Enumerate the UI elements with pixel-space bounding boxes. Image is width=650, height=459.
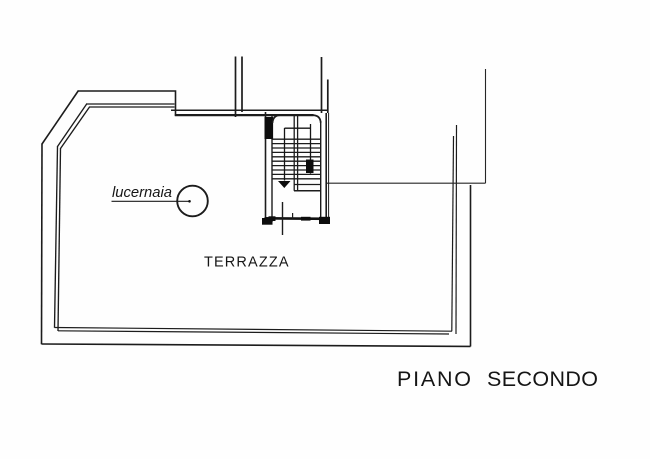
svg-text:lucernaia: lucernaia [112, 184, 172, 201]
svg-text:PIANO: PIANO [397, 367, 471, 391]
svg-text:TERRAZZA: TERRAZZA [204, 254, 289, 270]
svg-text:SECONDO: SECONDO [487, 367, 598, 391]
